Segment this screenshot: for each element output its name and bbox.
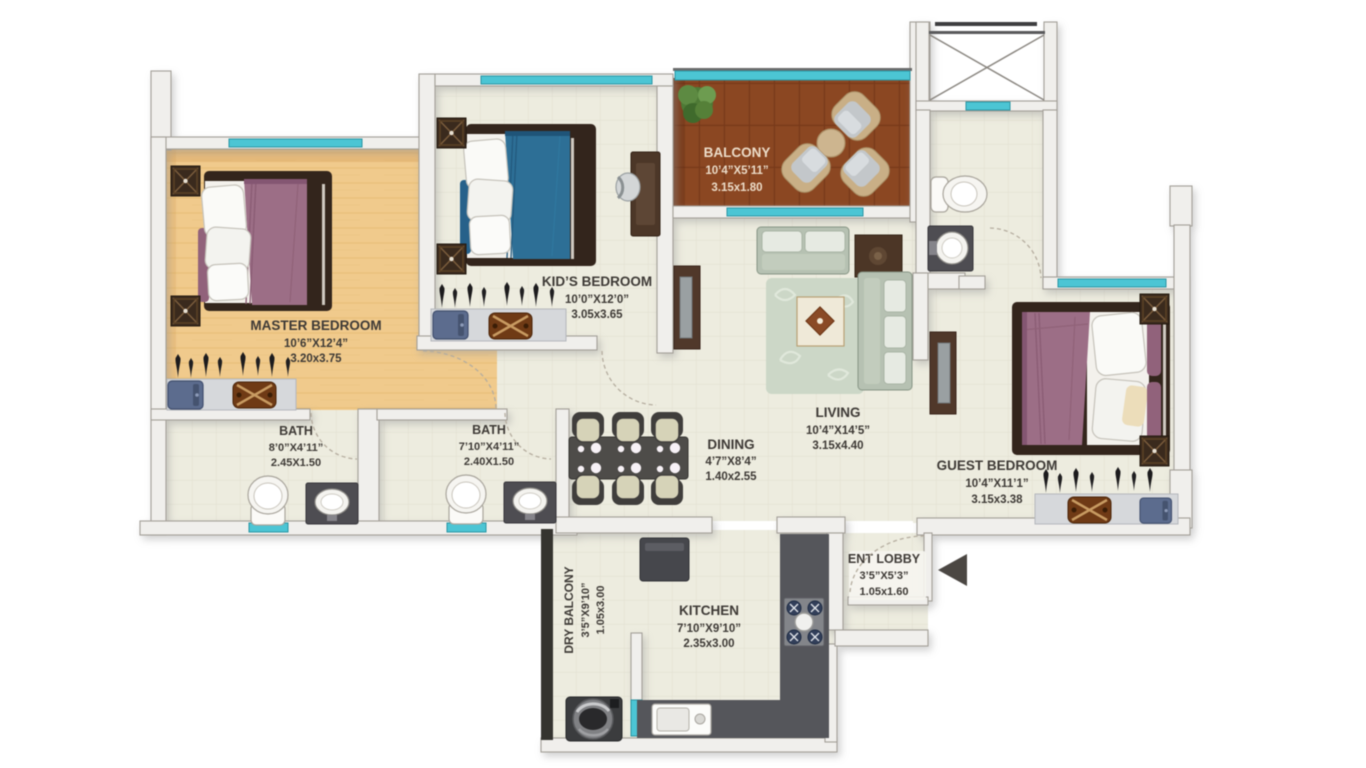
svg-text:BATH: BATH xyxy=(279,424,313,438)
svg-text:3.15x4.40: 3.15x4.40 xyxy=(812,440,863,452)
svg-text:BALCONY: BALCONY xyxy=(704,145,771,160)
svg-text:10’4”X11’1”: 10’4”X11’1” xyxy=(965,478,1028,490)
svg-text:DRY BALCONY: DRY BALCONY xyxy=(562,566,576,653)
svg-text:KID’S BEDROOM: KID’S BEDROOM xyxy=(542,274,652,289)
svg-text:1.40x2.55: 1.40x2.55 xyxy=(705,471,757,483)
svg-text:10’0”X12’0”: 10’0”X12’0” xyxy=(565,294,629,306)
svg-text:10’6”X12’4”: 10’6”X12’4” xyxy=(284,338,348,350)
svg-text:1.05x1.60: 1.05x1.60 xyxy=(860,586,909,598)
svg-text:3.20x3.75: 3.20x3.75 xyxy=(290,353,342,365)
svg-text:7’10”X9’10”: 7’10”X9’10” xyxy=(677,623,741,635)
svg-text:2.40X1.50: 2.40X1.50 xyxy=(464,456,514,468)
svg-text:GUEST BEDROOM: GUEST BEDROOM xyxy=(937,458,1058,473)
svg-text:3.15x1.80: 3.15x1.80 xyxy=(711,182,762,194)
svg-text:8’0”X4’11”: 8’0”X4’11” xyxy=(269,442,323,454)
svg-text:3’5”X9’10”: 3’5”X9’10” xyxy=(580,582,592,637)
svg-text:10’4”X14’5”: 10’4”X14’5” xyxy=(806,425,870,437)
svg-text:2.35x3.00: 2.35x3.00 xyxy=(683,638,734,650)
svg-text:ENT LOBBY: ENT LOBBY xyxy=(848,552,921,566)
svg-text:2.45X1.50: 2.45X1.50 xyxy=(271,457,321,469)
svg-text:4’7”X8’4”: 4’7”X8’4” xyxy=(705,456,756,468)
svg-text:KITCHEN: KITCHEN xyxy=(679,603,739,618)
svg-text:MASTER BEDROOM: MASTER BEDROOM xyxy=(250,318,381,333)
svg-text:DINING: DINING xyxy=(707,437,754,452)
svg-text:7’10”X4’11”: 7’10”X4’11” xyxy=(459,441,520,453)
svg-text:BATH: BATH xyxy=(472,423,506,437)
svg-text:3’5”X5’3”: 3’5”X5’3” xyxy=(860,570,909,582)
svg-text:LIVING: LIVING xyxy=(815,405,860,420)
svg-text:3.05x3.65: 3.05x3.65 xyxy=(571,309,623,321)
svg-text:1.05x3.00: 1.05x3.00 xyxy=(595,586,607,635)
svg-text:3.15x3.38: 3.15x3.38 xyxy=(971,494,1023,506)
svg-text:10’4”X5’11”: 10’4”X5’11” xyxy=(705,165,768,177)
